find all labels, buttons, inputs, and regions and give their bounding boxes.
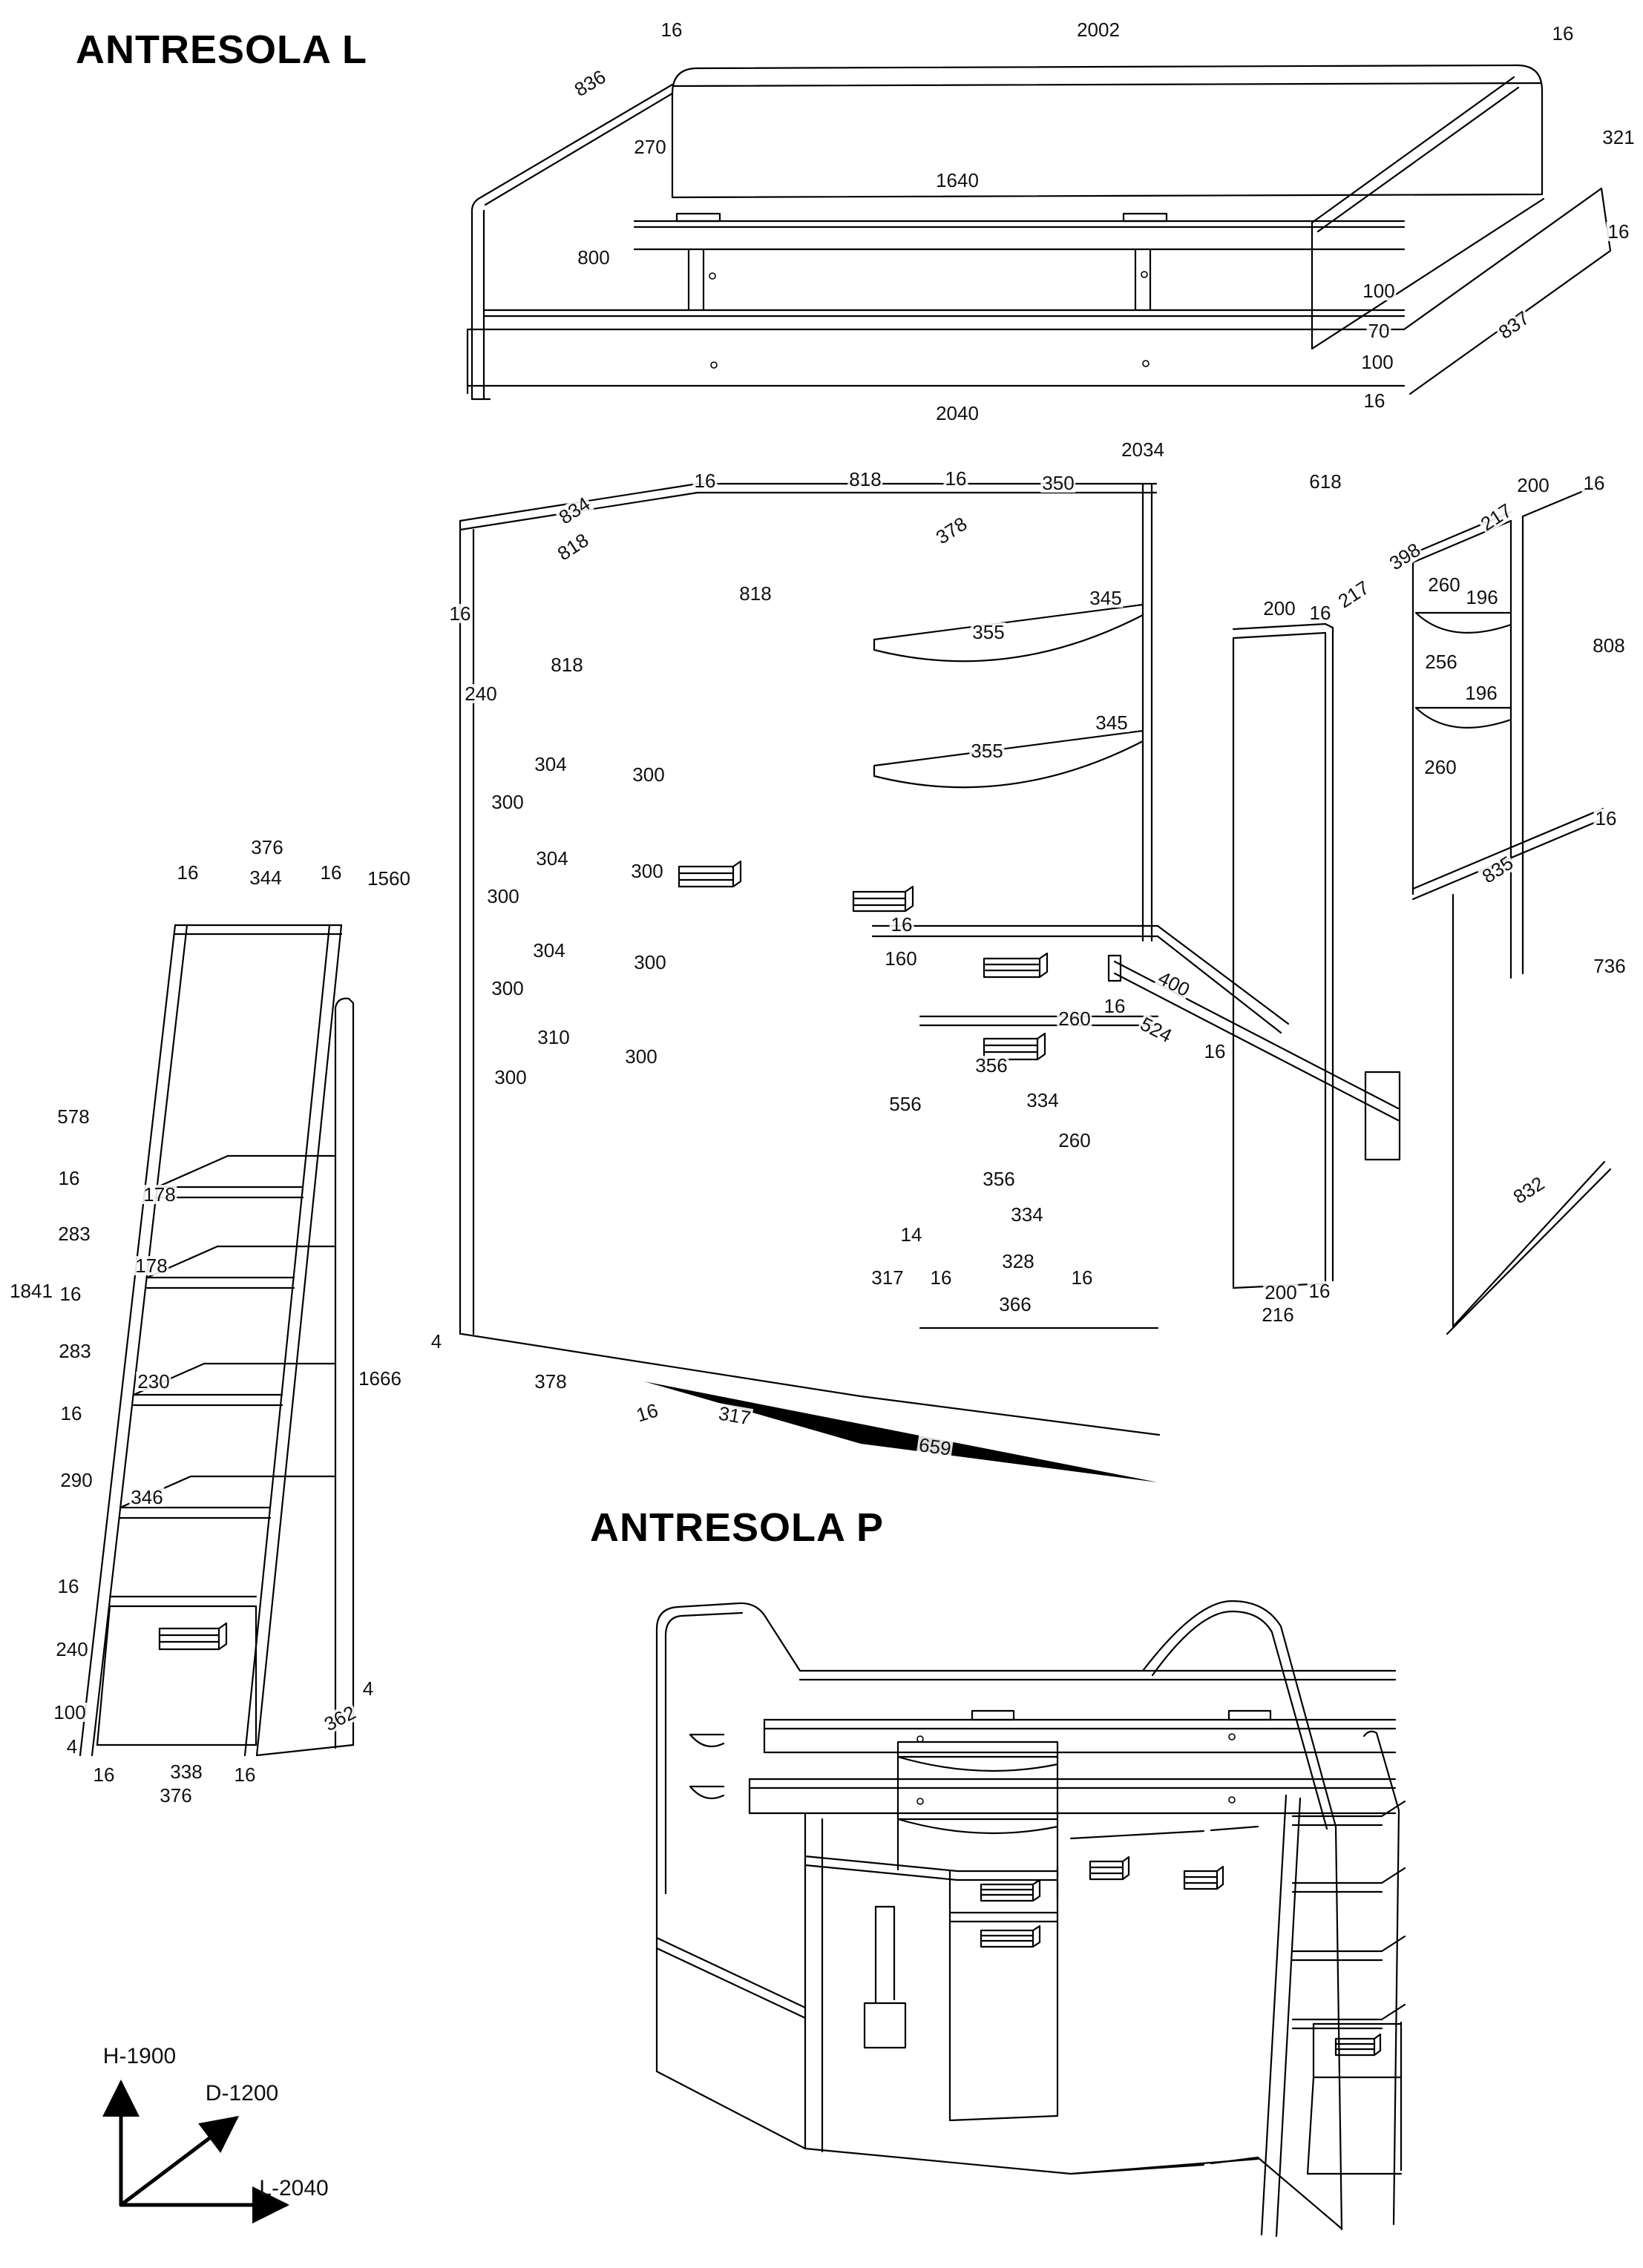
dimension-label: 16 bbox=[693, 471, 718, 490]
dimension-label: 818 bbox=[549, 655, 584, 674]
dimension-label: 16 bbox=[233, 1765, 258, 1784]
dimension-label: 300 bbox=[623, 1047, 658, 1066]
dimension-label: H-1900 bbox=[102, 2045, 177, 2068]
dimension-label: 16 bbox=[1551, 24, 1575, 43]
dimension-label: 100 bbox=[52, 1703, 87, 1722]
wardrobe-drawing bbox=[399, 454, 1610, 1490]
dimension-label: 290 bbox=[59, 1470, 94, 1490]
dimension-label: 16 bbox=[944, 469, 968, 488]
dimension-label: 376 bbox=[158, 1786, 193, 1805]
dimension-label: 16 bbox=[319, 863, 344, 882]
dimension-label: 321 bbox=[1601, 128, 1636, 147]
dimension-label: 4 bbox=[430, 1332, 443, 1351]
dimension-label: 240 bbox=[54, 1640, 89, 1659]
dimension-label: 178 bbox=[142, 1185, 177, 1204]
dimension-label: 100 bbox=[1360, 352, 1394, 372]
dimension-label: 300 bbox=[485, 887, 520, 906]
dimension-label: 200 bbox=[1515, 476, 1550, 495]
dimension-label: 16 bbox=[1070, 1268, 1095, 1287]
bed-drawing bbox=[454, 36, 1610, 414]
dimension-label: 304 bbox=[531, 941, 566, 960]
dimension-label: 800 bbox=[576, 248, 611, 267]
dimension-label: 260 bbox=[1057, 1131, 1092, 1150]
dimension-label: 1666 bbox=[357, 1369, 403, 1388]
dimension-label: 16 bbox=[56, 1577, 81, 1596]
dimension-label: 356 bbox=[974, 1056, 1009, 1075]
dimension-label: 317 bbox=[715, 1403, 753, 1428]
dimension-label: 736 bbox=[1592, 956, 1627, 976]
dimension-label: 16 bbox=[1103, 996, 1127, 1016]
dimension-label: 355 bbox=[971, 622, 1006, 642]
dimension-label: 260 bbox=[1057, 1009, 1092, 1028]
dimension-label: 304 bbox=[533, 755, 568, 774]
dimension-label: 16 bbox=[1308, 603, 1333, 622]
dimension-label: 14 bbox=[899, 1225, 924, 1244]
dimension-label: 300 bbox=[629, 861, 664, 881]
dimension-label: 16 bbox=[176, 863, 200, 882]
dimension-label: L-2040 bbox=[258, 2177, 329, 2200]
dimension-label: 356 bbox=[981, 1169, 1016, 1189]
dimension-label: 4 bbox=[361, 1679, 375, 1698]
dimension-label: 16 bbox=[59, 1284, 83, 1304]
dimension-label: 16 bbox=[1362, 391, 1387, 410]
dimension-label: 346 bbox=[129, 1488, 164, 1507]
dimension-label: 300 bbox=[490, 792, 525, 812]
dimension-label: 16 bbox=[448, 604, 473, 623]
dimension-label: 355 bbox=[969, 741, 1004, 760]
dimension-label: 2034 bbox=[1120, 440, 1166, 459]
dimension-label: 2040 bbox=[934, 404, 980, 423]
dimension-label: 808 bbox=[1591, 636, 1626, 655]
dimension-label: 378 bbox=[533, 1372, 568, 1391]
dimension-label: 2002 bbox=[1075, 20, 1121, 39]
blueprint-page: ANTRESOLA L ANTRESOLA P bbox=[0, 0, 1643, 2268]
dimension-label: 16 bbox=[1607, 222, 1631, 241]
dimension-label: 16 bbox=[59, 1404, 84, 1423]
dimension-label: 216 bbox=[1260, 1305, 1295, 1324]
dimension-label: 1841 bbox=[8, 1281, 54, 1301]
dimension-label: 818 bbox=[738, 584, 773, 603]
dimension-label: 16 bbox=[1308, 1281, 1332, 1301]
dimension-label: 16 bbox=[1582, 473, 1607, 493]
dimension-label: 16 bbox=[92, 1765, 117, 1784]
assembled-drawing bbox=[657, 1601, 1405, 2236]
ladder-drawing bbox=[45, 855, 378, 1803]
dimension-label: 16 bbox=[660, 20, 684, 39]
dimension-label: 1640 bbox=[934, 171, 980, 190]
dimension-label: 618 bbox=[1308, 472, 1342, 491]
dimension-label: 200 bbox=[1263, 1283, 1298, 1302]
dimension-label: 300 bbox=[631, 765, 666, 784]
dimension-label: 196 bbox=[1463, 683, 1498, 703]
dimension-label: 1560 bbox=[366, 869, 412, 888]
dimension-label: 260 bbox=[1426, 575, 1461, 594]
dimension-label: 283 bbox=[56, 1224, 91, 1243]
dimension-label: 260 bbox=[1423, 757, 1457, 777]
dimension-label: 200 bbox=[1262, 599, 1296, 618]
dimension-label: 230 bbox=[136, 1372, 171, 1391]
dimension-label: 328 bbox=[1000, 1252, 1035, 1271]
dimension-label: 334 bbox=[1025, 1091, 1060, 1110]
dimension-label: 16 bbox=[57, 1168, 82, 1188]
dimension-label: 160 bbox=[883, 949, 918, 968]
dimension-label: 659 bbox=[916, 1435, 954, 1459]
dimension-label: 300 bbox=[493, 1068, 528, 1087]
dimension-label: 256 bbox=[1423, 652, 1458, 671]
dimension-label: 16 bbox=[929, 1268, 954, 1287]
dimension-label: 310 bbox=[536, 1028, 571, 1047]
dimension-label: 317 bbox=[870, 1268, 905, 1287]
dimension-label: 16 bbox=[890, 915, 914, 934]
dimension-label: 100 bbox=[1361, 281, 1396, 300]
dimension-label: 70 bbox=[1367, 321, 1391, 341]
dimension-label: 196 bbox=[1464, 588, 1499, 607]
dimension-label: 240 bbox=[463, 684, 498, 703]
dimension-label: D-1200 bbox=[204, 2083, 280, 2105]
line-art bbox=[0, 0, 1643, 2268]
dimension-label: 16 bbox=[1594, 809, 1619, 828]
dimension-label: 16 bbox=[1203, 1042, 1227, 1061]
dimension-label: 300 bbox=[632, 953, 667, 972]
dimension-label: 4 bbox=[65, 1737, 79, 1756]
dimension-label: 818 bbox=[847, 470, 882, 489]
dimension-label: 376 bbox=[249, 838, 284, 857]
dimension-label: 556 bbox=[888, 1094, 922, 1114]
dimension-label: 578 bbox=[56, 1107, 91, 1126]
dimension-label: 350 bbox=[1040, 473, 1075, 493]
dimension-label: 283 bbox=[57, 1341, 92, 1361]
dimension-label: 178 bbox=[134, 1256, 168, 1275]
dimension-label: 344 bbox=[248, 868, 283, 887]
dimension-label: 304 bbox=[534, 849, 569, 868]
dimension-label: 345 bbox=[1088, 588, 1123, 608]
dimension-label: 338 bbox=[168, 1762, 203, 1781]
dimension-label: 300 bbox=[490, 979, 525, 998]
dimension-label: 334 bbox=[1009, 1205, 1044, 1224]
dimension-label: 270 bbox=[632, 137, 667, 157]
dimension-label: 345 bbox=[1094, 713, 1129, 732]
dimension-label: 366 bbox=[997, 1295, 1032, 1314]
